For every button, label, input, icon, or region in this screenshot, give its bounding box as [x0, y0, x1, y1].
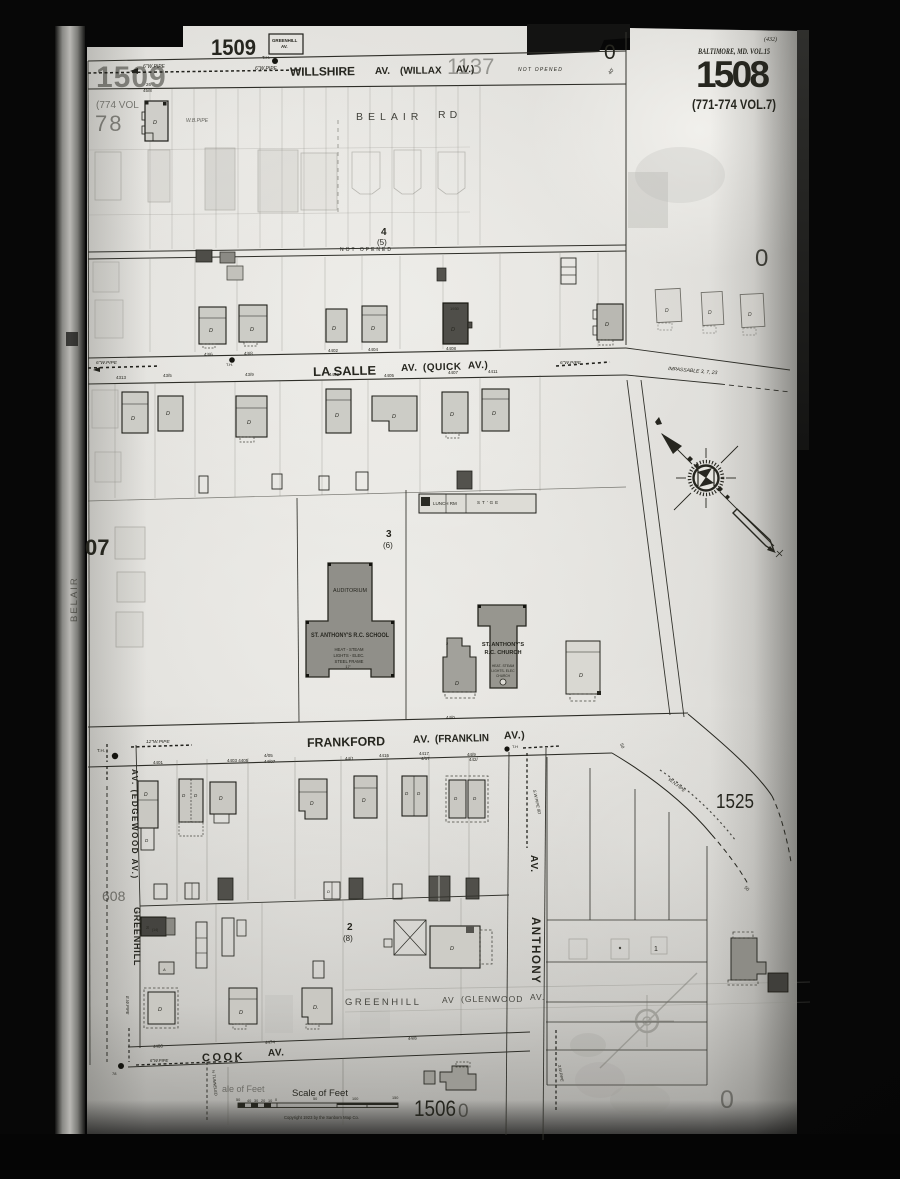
svg-text:A: A [162, 967, 166, 972]
svg-text:4415: 4415 [379, 753, 390, 758]
svg-text:0: 0 [720, 1086, 734, 1114]
svg-text:AV.: AV. [530, 992, 545, 1002]
svg-text:ST. ANTHONY'S: ST. ANTHONY'S [482, 642, 524, 648]
svg-text:AV.: AV. [413, 733, 431, 745]
svg-text:BELAIR: BELAIR [69, 576, 80, 622]
svg-text:D: D [451, 327, 455, 333]
svg-text:AV.: AV. [281, 44, 288, 49]
svg-text:43/9: 43/9 [245, 372, 254, 377]
svg-text:20: 20 [261, 1099, 265, 1103]
svg-text:100: 100 [352, 1097, 358, 1101]
svg-text:78: 78 [95, 111, 123, 136]
svg-text:D: D [665, 308, 669, 314]
svg-text:ST'GE: ST'GE [477, 500, 500, 505]
svg-text:E.W.PIPE: E.W.PIPE [125, 996, 130, 1015]
svg-text:D.: D. [313, 1005, 319, 1011]
svg-text:4403 4405: 4403 4405 [227, 758, 249, 763]
svg-text:W.B.PIPE: W.B.PIPE [186, 118, 209, 124]
svg-text:50: 50 [313, 1097, 317, 1101]
svg-text:4407: 4407 [448, 370, 459, 375]
svg-text:0: 0 [275, 1098, 277, 1102]
svg-text:T.H.: T.H. [226, 362, 233, 367]
svg-text:AV.: AV. [401, 363, 418, 374]
svg-text:D: D [327, 889, 330, 894]
svg-text:RD: RD [438, 109, 461, 121]
svg-text:LA SALLE: LA SALLE [313, 364, 376, 379]
svg-text:45/8: 45/8 [143, 88, 152, 93]
svg-text:T.H: T.H [512, 744, 518, 749]
svg-text:4401: 4401 [153, 760, 164, 765]
svg-text:(774 VOL: (774 VOL [96, 100, 139, 111]
svg-text:6"W.PIPE: 6"W.PIPE [143, 64, 166, 70]
svg-text:AV: AV [442, 995, 455, 1005]
svg-text:D: D [250, 327, 254, 333]
svg-text:D: D [392, 414, 396, 420]
svg-text:4405: 4405 [384, 373, 395, 378]
svg-text:LUNCH RM: LUNCH RM [433, 501, 457, 506]
svg-text:30: 30 [254, 1099, 258, 1103]
svg-text:50: 50 [236, 1098, 240, 1102]
svg-text:6"W.PIPE: 6"W.PIPE [96, 360, 118, 366]
svg-text:(6): (6) [383, 541, 393, 550]
svg-text:D: D [332, 326, 336, 332]
svg-text:GREENHILL: GREENHILL [345, 997, 421, 1008]
svg-text:D: D [144, 792, 148, 798]
svg-text:1137: 1137 [447, 54, 494, 79]
svg-text:12"W.PIPE: 12"W.PIPE [146, 739, 170, 745]
svg-text:150: 150 [392, 1096, 398, 1100]
svg-text:4/05: 4/05 [264, 753, 273, 758]
svg-text:0: 0 [755, 245, 768, 272]
svg-text:0: 0 [458, 1101, 469, 1122]
svg-text:LIGHTS - ELEC.: LIGHTS - ELEC. [334, 653, 365, 658]
svg-text:1: 1 [654, 946, 658, 953]
svg-text:D: D [310, 801, 314, 807]
svg-text:WILLSHIRE: WILLSHIRE [290, 64, 355, 79]
svg-text:(14): (14) [152, 928, 158, 932]
svg-text:(WILLAX: (WILLAX [400, 65, 442, 76]
svg-text:GREENHILL: GREENHILL [132, 907, 142, 966]
svg-text:1508: 1508 [696, 54, 770, 95]
svg-text:4404: 4404 [368, 347, 379, 352]
svg-text:AV.: AV. [268, 1047, 285, 1059]
svg-text:D: D [579, 673, 583, 679]
svg-text:AV.): AV.) [504, 729, 526, 741]
svg-text:AV.: AV. [528, 855, 539, 873]
svg-text:D: D [362, 798, 366, 804]
svg-text:442/: 442/ [469, 757, 479, 762]
svg-text:43/5: 43/5 [163, 373, 172, 378]
svg-text:4411: 4411 [488, 369, 498, 374]
svg-text:ANTHONY: ANTHONY [529, 917, 541, 984]
svg-text:(771-774 VOL.7): (771-774 VOL.7) [692, 96, 776, 112]
svg-text:D: D [219, 796, 223, 802]
svg-text:1506: 1506 [414, 1096, 456, 1121]
svg-text:4313: 4313 [116, 375, 127, 380]
svg-text:Copyright 1923 by the Sanborn: Copyright 1923 by the Sanborn Map Co. [284, 1115, 359, 1120]
svg-text:NOT OPENED: NOT OPENED [518, 67, 563, 73]
svg-text:D: D [605, 322, 609, 328]
svg-text:D: D [158, 1007, 162, 1013]
svg-text:4408: 4408 [446, 346, 457, 351]
svg-text:D: D [371, 326, 375, 332]
svg-text:FRANKFORD: FRANKFORD [307, 734, 385, 750]
svg-text:GREENHILL: GREENHILL [272, 38, 298, 43]
svg-text:BELAIR: BELAIR [356, 111, 423, 123]
svg-text:Scale of Feet: Scale of Feet [292, 1088, 348, 1099]
svg-text:44/07: 44/07 [264, 759, 276, 764]
svg-text:D: D [708, 310, 712, 316]
svg-text:D: D [335, 413, 339, 419]
svg-text:4402: 4402 [328, 348, 339, 353]
svg-text:(8): (8) [343, 934, 353, 943]
svg-text:D: D [209, 328, 213, 334]
svg-text:78: 78 [112, 1071, 117, 1076]
svg-text:D: D [131, 416, 135, 422]
svg-text:D: D [492, 411, 496, 417]
svg-text:44/0: 44/0 [446, 715, 455, 720]
svg-text:CHURCH: CHURCH [496, 674, 511, 678]
svg-text:(5): (5) [377, 238, 387, 247]
svg-text:AV.: AV. [375, 66, 390, 77]
svg-text:D: D [450, 412, 454, 418]
svg-text:D: D [166, 411, 170, 417]
svg-text:10: 10 [268, 1099, 272, 1103]
svg-text:ale of Feet: ale of Feet [222, 1084, 265, 1094]
svg-text:S: S [146, 925, 149, 930]
svg-text:AV.): AV.) [468, 360, 489, 371]
svg-text:3: 3 [386, 529, 392, 540]
svg-text:D: D [450, 946, 454, 952]
svg-text:R.C. CHURCH: R.C. CHURCH [485, 650, 522, 656]
svg-text:1930: 1930 [450, 306, 460, 311]
svg-text:17': 17' [345, 664, 350, 669]
svg-text:HEAT- STEAM: HEAT- STEAM [492, 664, 515, 668]
svg-text:HEAT - STEAM: HEAT - STEAM [335, 647, 364, 652]
svg-text:(GLENWOOD: (GLENWOOD [461, 994, 523, 1004]
svg-text:T.H.: T.H. [97, 748, 105, 753]
svg-text:1509: 1509 [211, 35, 256, 60]
svg-text:07: 07 [85, 535, 109, 560]
svg-text:26: 26 [146, 82, 152, 87]
svg-text:D: D [748, 312, 752, 318]
svg-text:AUDITORIUM: AUDITORIUM [333, 588, 367, 594]
svg-text:6"W.PIPE: 6"W.PIPE [150, 1058, 169, 1063]
svg-text:4403: 4403 [329, 372, 340, 377]
svg-text:D: D [247, 420, 251, 426]
svg-text:2: 2 [347, 922, 353, 933]
svg-text:ST. ANTHONY'S R.C. SCHOOL: ST. ANTHONY'S R.C. SCHOOL [311, 632, 389, 639]
svg-text:1525: 1525 [716, 791, 754, 813]
svg-text:44/1: 44/1 [345, 756, 354, 761]
svg-text:LIGHTS- ELEC: LIGHTS- ELEC [491, 669, 515, 673]
svg-text:D: D [455, 681, 459, 687]
svg-text:(432): (432) [764, 36, 777, 43]
svg-text:4: 4 [381, 227, 387, 238]
svg-text:NOT OPENED: NOT OPENED [340, 247, 393, 253]
svg-text:0: 0 [604, 41, 616, 64]
svg-text:40: 40 [247, 1099, 251, 1103]
svg-text:608: 608 [102, 888, 126, 904]
svg-text:(FRANKLIN: (FRANKLIN [435, 732, 489, 745]
svg-text:D: D [153, 120, 157, 126]
svg-text:D: D [239, 1010, 243, 1016]
